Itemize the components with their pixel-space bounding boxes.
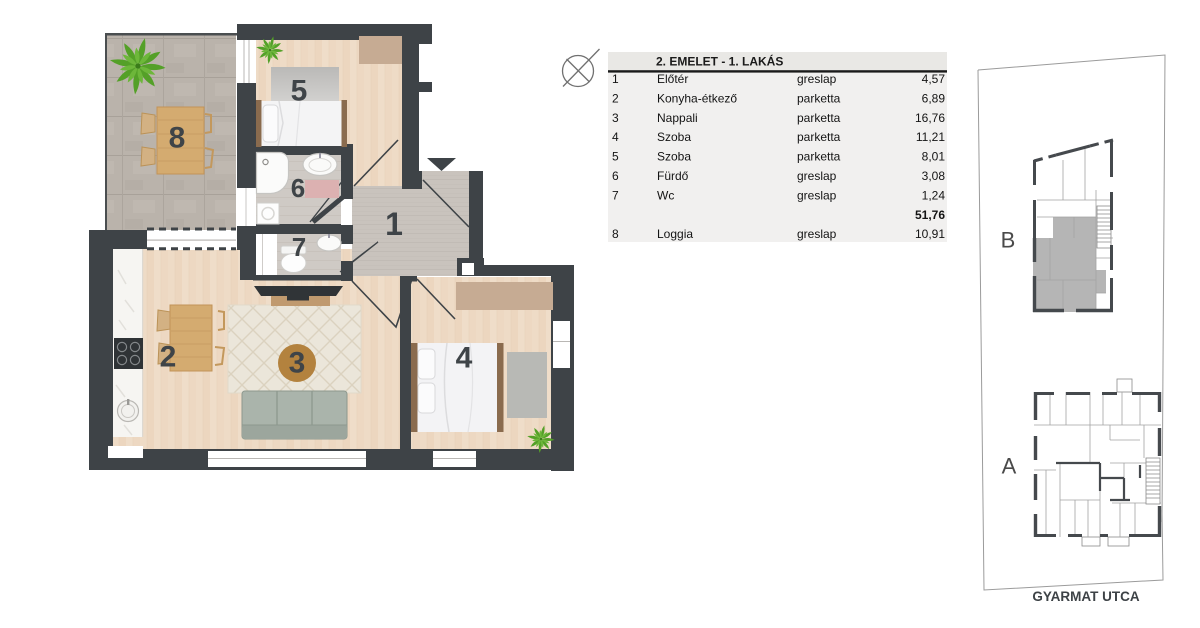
svg-text:A: A: [1002, 454, 1017, 479]
svg-text:Fürdő: Fürdő: [657, 169, 689, 183]
svg-text:5: 5: [291, 75, 308, 108]
svg-text:5: 5: [612, 150, 619, 164]
svg-text:Loggia: Loggia: [657, 227, 693, 241]
svg-text:GYARMAT UTCA: GYARMAT UTCA: [1032, 589, 1139, 604]
svg-text:greslap: greslap: [797, 72, 837, 86]
svg-text:1,24: 1,24: [922, 188, 946, 202]
svg-text:8: 8: [612, 227, 619, 241]
svg-text:4: 4: [612, 130, 619, 144]
svg-text:6: 6: [612, 169, 619, 183]
svg-text:Szoba: Szoba: [657, 150, 691, 164]
svg-text:6: 6: [291, 173, 305, 203]
svg-text:8: 8: [169, 122, 186, 155]
svg-text:B: B: [1001, 228, 1016, 253]
svg-text:Szoba: Szoba: [657, 130, 691, 144]
svg-text:Nappali: Nappali: [657, 111, 698, 125]
svg-text:8,01: 8,01: [922, 150, 946, 164]
svg-text:Konyha-étkező: Konyha-étkező: [657, 91, 737, 105]
svg-text:16,76: 16,76: [915, 111, 945, 125]
svg-text:parketta: parketta: [797, 111, 841, 125]
svg-text:2: 2: [160, 341, 177, 374]
svg-text:7: 7: [292, 232, 306, 262]
svg-text:2. EMELET - 1. LAKÁS: 2. EMELET - 1. LAKÁS: [656, 54, 783, 69]
svg-text:parketta: parketta: [797, 91, 841, 105]
svg-text:10,91: 10,91: [915, 227, 945, 241]
svg-text:greslap: greslap: [797, 227, 837, 241]
svg-text:parketta: parketta: [797, 130, 841, 144]
svg-text:11,21: 11,21: [916, 130, 945, 144]
svg-text:6,89: 6,89: [922, 91, 946, 105]
svg-text:3: 3: [289, 347, 306, 380]
svg-text:greslap: greslap: [797, 169, 837, 183]
svg-text:1: 1: [385, 206, 403, 242]
svg-text:4: 4: [456, 342, 473, 375]
svg-text:Wc: Wc: [657, 188, 674, 202]
svg-text:3: 3: [612, 111, 619, 125]
svg-text:51,76: 51,76: [915, 208, 945, 222]
svg-text:3,08: 3,08: [922, 169, 946, 183]
svg-text:parketta: parketta: [797, 150, 841, 164]
svg-text:Előtér: Előtér: [657, 72, 688, 86]
svg-text:2: 2: [612, 91, 619, 105]
svg-text:7: 7: [612, 188, 619, 202]
svg-text:greslap: greslap: [797, 188, 837, 202]
svg-text:1: 1: [612, 72, 619, 86]
svg-text:4,57: 4,57: [922, 72, 946, 86]
